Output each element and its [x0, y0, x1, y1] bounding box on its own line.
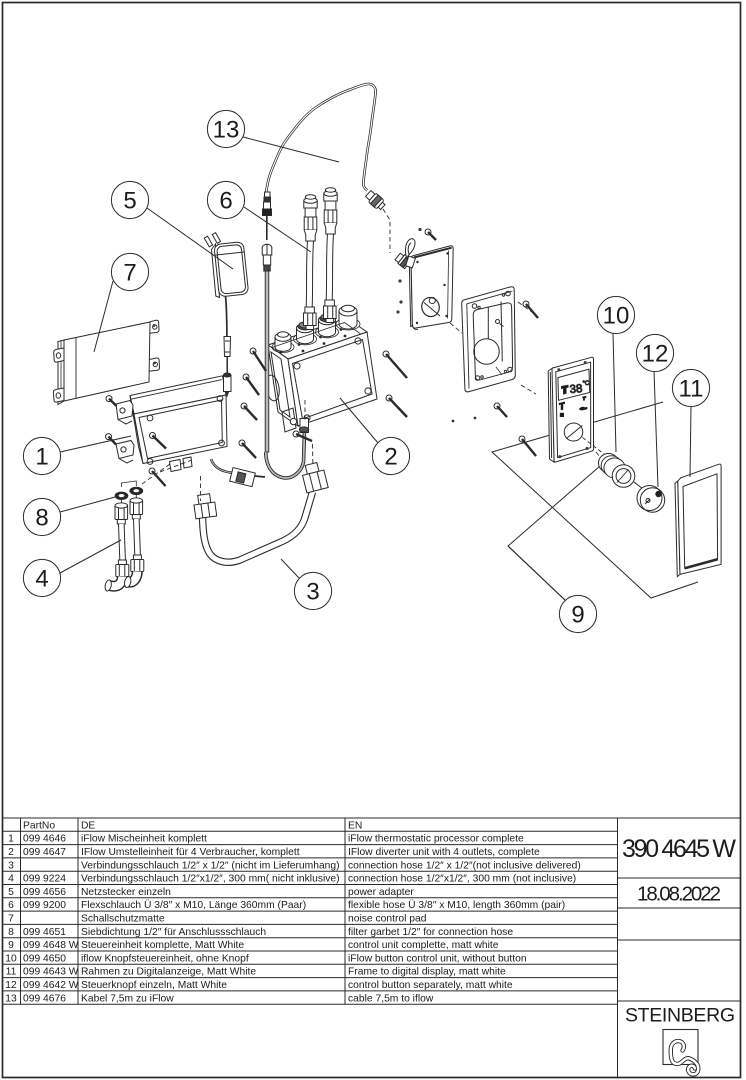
- svg-text:iFlow button control unit, wit: iFlow button control unit, without butto…: [348, 953, 527, 964]
- svg-text:3: 3: [8, 860, 14, 871]
- svg-text:10: 10: [603, 303, 630, 330]
- svg-text:38: 38: [569, 383, 583, 396]
- svg-text:5: 5: [123, 188, 136, 215]
- svg-text:12: 12: [642, 341, 669, 368]
- svg-text:iFlow thermostatic processor c: iFlow thermostatic processor complete: [348, 834, 524, 845]
- svg-text:099 4656: 099 4656: [23, 887, 66, 898]
- svg-text:7: 7: [123, 260, 136, 287]
- svg-text:099 9224: 099 9224: [23, 874, 66, 885]
- svg-text:iFlow Mischeinheit komplett: iFlow Mischeinheit komplett: [81, 834, 207, 845]
- svg-text:Siebdichtung 1/2″ für Anschlus: Siebdichtung 1/2″ für Anschlussschlauch: [81, 927, 266, 938]
- svg-text:099 4676: 099 4676: [23, 993, 66, 1004]
- svg-text:control button separately, mat: control button separately, matt white: [348, 980, 513, 991]
- svg-text:2: 2: [8, 847, 14, 858]
- svg-text:099 4646: 099 4646: [23, 834, 66, 845]
- svg-text:IFlow diverter unit with 4 out: IFlow diverter unit with 4 outlets, comp…: [348, 847, 540, 858]
- svg-text:099 4648 W: 099 4648 W: [23, 940, 79, 951]
- svg-text:11: 11: [6, 967, 17, 978]
- svg-text:filter garbet 1/2″ for connect: filter garbet 1/2″ for connection hose: [348, 927, 513, 938]
- svg-text:13: 13: [5, 993, 17, 1004]
- svg-text:2: 2: [384, 444, 397, 471]
- svg-text:PartNo: PartNo: [23, 821, 55, 832]
- svg-text:°C: °C: [583, 381, 590, 387]
- svg-text:noise control pad: noise control pad: [348, 914, 427, 925]
- svg-text:connection hose 1/2″ x 1/2″(n: connection hose 1/2″ x 1/2″(not inclusiv…: [348, 860, 581, 871]
- svg-text:iflow Knopfsteuereinheit, ohne: iflow Knopfsteuereinheit, ohne Knopf: [81, 953, 249, 964]
- svg-text:Verbindungsschlauch 1/2″x1/2″,: Verbindungsschlauch 1/2″x1/2″, 300 mm( n…: [81, 874, 340, 885]
- svg-text:10: 10: [5, 953, 17, 964]
- svg-text:1: 1: [8, 834, 14, 845]
- svg-text:Schallschutzmatte: Schallschutzmatte: [81, 914, 165, 925]
- svg-text:control unit complette, matt w: control unit complette, matt white: [348, 940, 499, 951]
- svg-text:4: 4: [8, 874, 14, 885]
- svg-text:power adapter: power adapter: [348, 887, 414, 898]
- svg-text:Steuerknopf einzeln, Matt Whit: Steuerknopf einzeln, Matt White: [81, 980, 227, 991]
- svg-text:9: 9: [571, 602, 584, 629]
- svg-text:12: 12: [5, 980, 17, 991]
- svg-text:Rahmen zu Digitalanzeige, Matt: Rahmen zu Digitalanzeige, Matt White: [81, 967, 256, 978]
- svg-text:390 4645 W: 390 4645 W: [622, 835, 736, 863]
- svg-text:099 4642 W: 099 4642 W: [23, 980, 79, 991]
- svg-text:STEINBERG: STEINBERG: [625, 1005, 735, 1027]
- svg-text:1: 1: [35, 444, 48, 471]
- svg-text:6: 6: [8, 900, 14, 911]
- svg-text:099 4651: 099 4651: [23, 927, 66, 938]
- svg-text:8: 8: [35, 505, 48, 532]
- svg-text:IFlow Umstelleinheit für 4 Ver: IFlow Umstelleinheit für 4 Verbraucher, …: [81, 847, 300, 858]
- svg-text:flexible hose Ü 3/8″ x M10, le: flexible hose Ü 3/8″ x M10, length 360mm…: [348, 899, 565, 911]
- svg-text:099 4647: 099 4647: [23, 847, 66, 858]
- svg-text:Kabel 7,5m zu iFlow: Kabel 7,5m zu iFlow: [81, 993, 174, 1004]
- svg-text:5: 5: [8, 887, 14, 898]
- svg-text:6: 6: [219, 188, 232, 215]
- svg-text:Verbindungsschlauch 1/2″ x 1/2: Verbindungsschlauch 1/2″ x 1/2″ (nicht i…: [81, 860, 340, 871]
- svg-text:Netzstecker einzeln: Netzstecker einzeln: [81, 887, 171, 898]
- svg-text:099 4643 W: 099 4643 W: [23, 967, 79, 978]
- svg-text:3: 3: [306, 579, 319, 606]
- svg-text:13: 13: [213, 117, 240, 144]
- svg-text:8: 8: [8, 927, 14, 938]
- svg-text:099 4650: 099 4650: [23, 953, 66, 964]
- svg-text:connection hose 1/2″x1/2″, 300: connection hose 1/2″x1/2″, 300 mm (not i…: [348, 874, 576, 885]
- svg-text:7: 7: [8, 914, 14, 925]
- svg-text:11: 11: [679, 376, 704, 403]
- svg-text:Steuereinheit komplette, Matt: Steuereinheit komplette, Matt White: [81, 940, 244, 951]
- svg-text:18.08.2022: 18.08.2022: [637, 883, 721, 906]
- svg-text:9: 9: [8, 940, 14, 951]
- svg-text:Frame to digital display, matt: Frame to digital display, matt white: [348, 967, 506, 978]
- svg-text:DE: DE: [81, 821, 95, 832]
- svg-text:099 9200: 099 9200: [23, 900, 66, 911]
- svg-text:EN: EN: [348, 821, 362, 832]
- svg-text:cable 7,5m to iflow: cable 7,5m to iflow: [348, 993, 434, 1004]
- svg-text:Flexschlauch Ü 3/8″ x M10, Län: Flexschlauch Ü 3/8″ x M10, Länge 360mm (…: [81, 899, 306, 911]
- svg-text:4: 4: [35, 566, 48, 593]
